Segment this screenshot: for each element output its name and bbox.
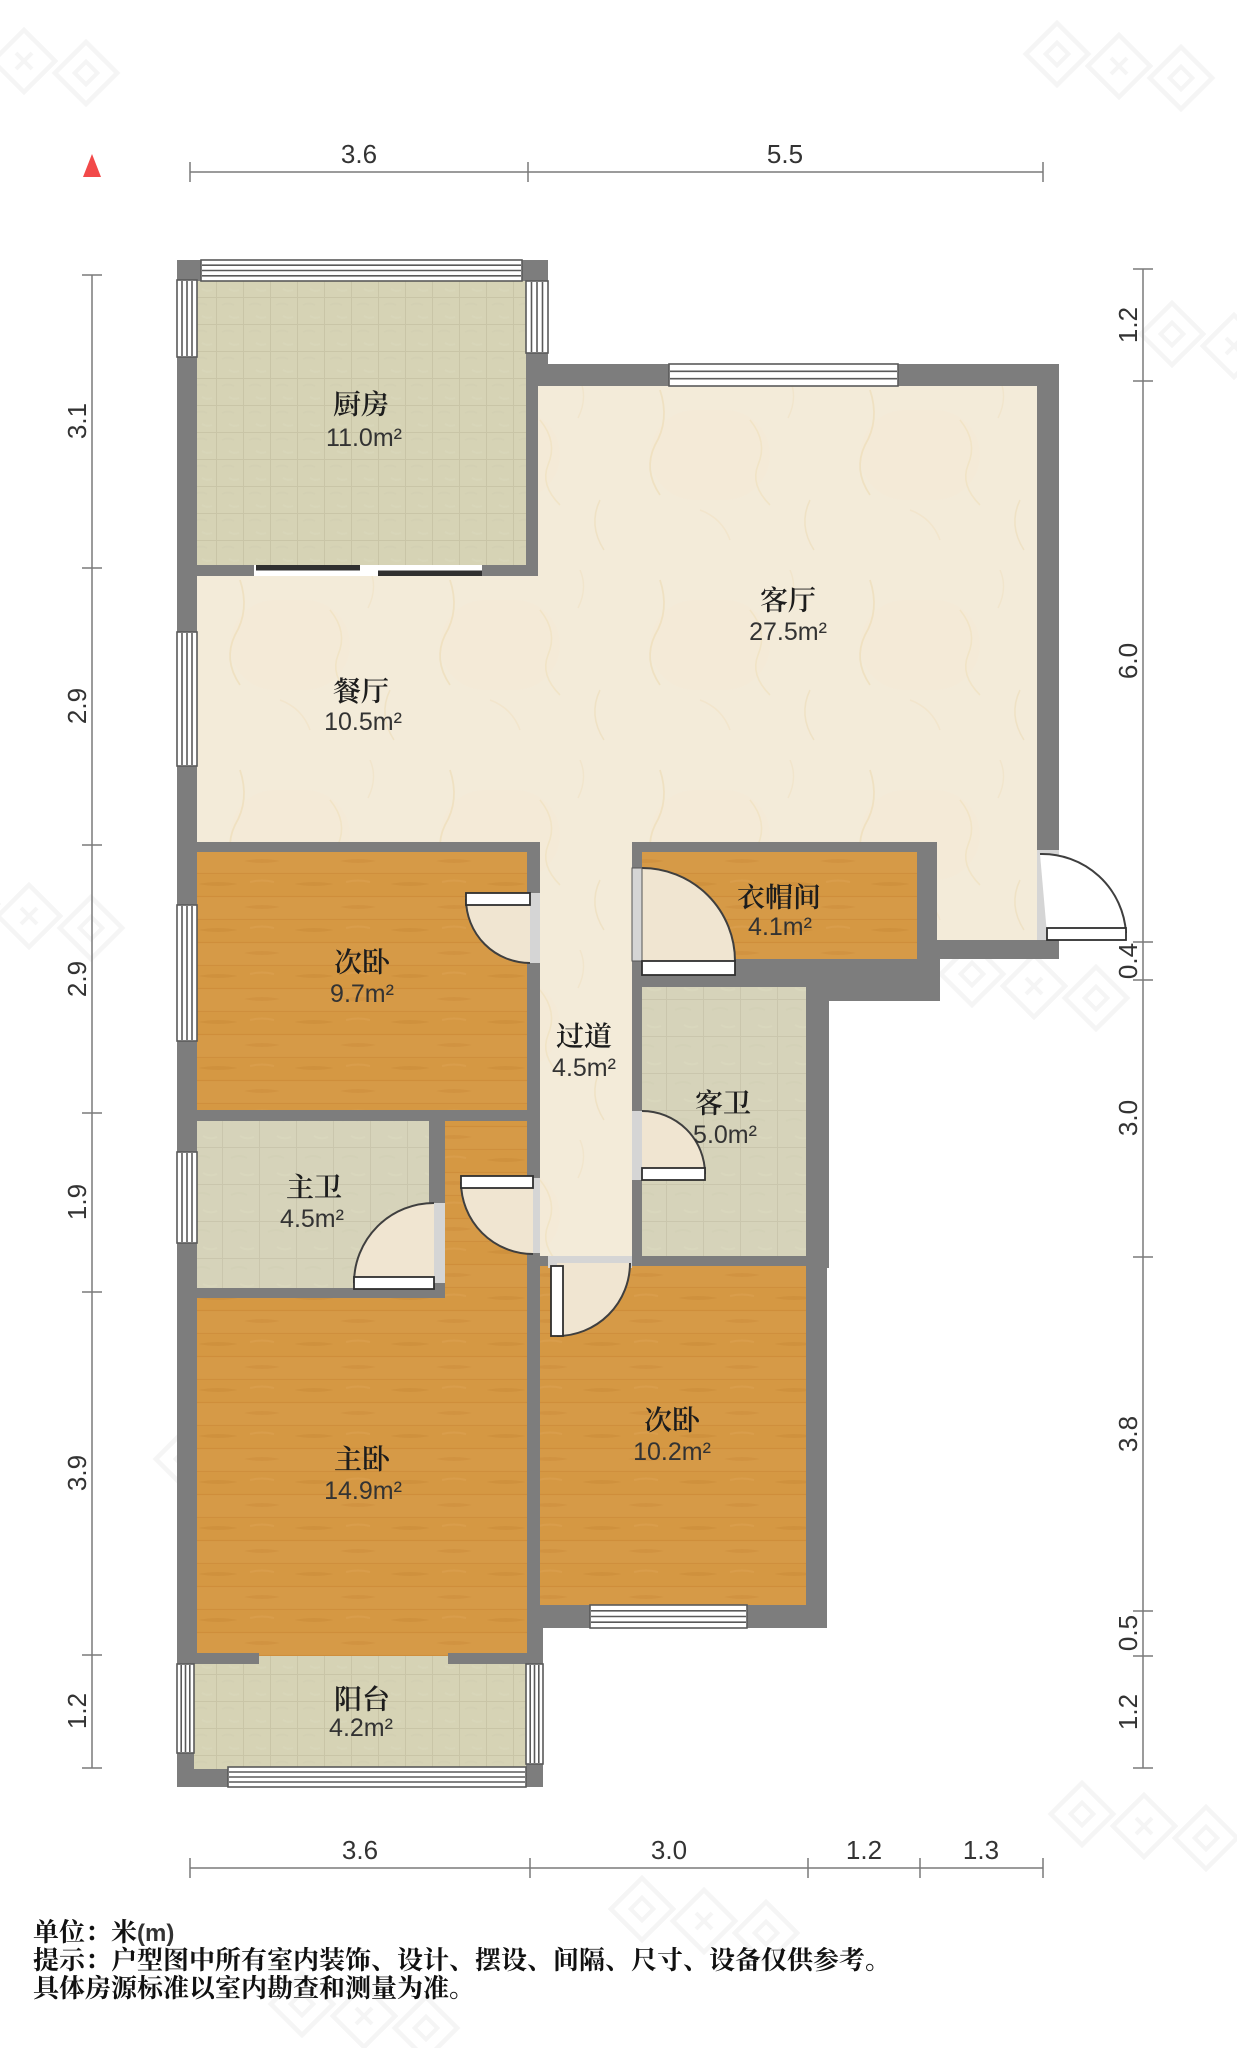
svg-text:0.5: 0.5 xyxy=(1113,1615,1143,1651)
svg-text:3.0: 3.0 xyxy=(651,1835,687,1865)
svg-text:1.2: 1.2 xyxy=(1113,307,1143,343)
svg-text:4.1m²: 4.1m² xyxy=(748,913,812,941)
svg-text:27.5m²: 27.5m² xyxy=(749,618,827,646)
svg-text:1.3: 1.3 xyxy=(963,1835,999,1865)
svg-text:4.5m²: 4.5m² xyxy=(280,1205,344,1233)
svg-text:14.9m²: 14.9m² xyxy=(324,1477,402,1505)
svg-text:10.2m²: 10.2m² xyxy=(633,1438,711,1466)
svg-text:3.6: 3.6 xyxy=(342,1835,378,1865)
svg-text:2.9: 2.9 xyxy=(62,961,92,997)
svg-text:1.2: 1.2 xyxy=(62,1693,92,1729)
svg-text:1.2: 1.2 xyxy=(1113,1694,1143,1730)
svg-text:1.9: 1.9 xyxy=(62,1184,92,1220)
svg-text:6.0: 6.0 xyxy=(1113,643,1143,679)
svg-text:9.7m²: 9.7m² xyxy=(330,980,394,1008)
svg-text:3.1: 3.1 xyxy=(62,403,92,439)
svg-text:5.0m²: 5.0m² xyxy=(693,1121,757,1149)
svg-text:3.9: 3.9 xyxy=(62,1455,92,1491)
svg-text:5.5: 5.5 xyxy=(767,139,803,169)
svg-text:3.0: 3.0 xyxy=(1113,1100,1143,1136)
svg-text:3.6: 3.6 xyxy=(341,139,377,169)
svg-text:3.8: 3.8 xyxy=(1113,1416,1143,1452)
svg-text:1.2: 1.2 xyxy=(846,1835,882,1865)
svg-text:0.4: 0.4 xyxy=(1113,943,1143,979)
svg-text:(m): (m) xyxy=(137,1920,174,1947)
svg-text:2.9: 2.9 xyxy=(62,688,92,724)
svg-text:4.5m²: 4.5m² xyxy=(552,1054,616,1082)
svg-text:10.5m²: 10.5m² xyxy=(324,708,402,736)
svg-text:4.2m²: 4.2m² xyxy=(329,1714,393,1742)
svg-text:11.0m²: 11.0m² xyxy=(326,424,402,452)
